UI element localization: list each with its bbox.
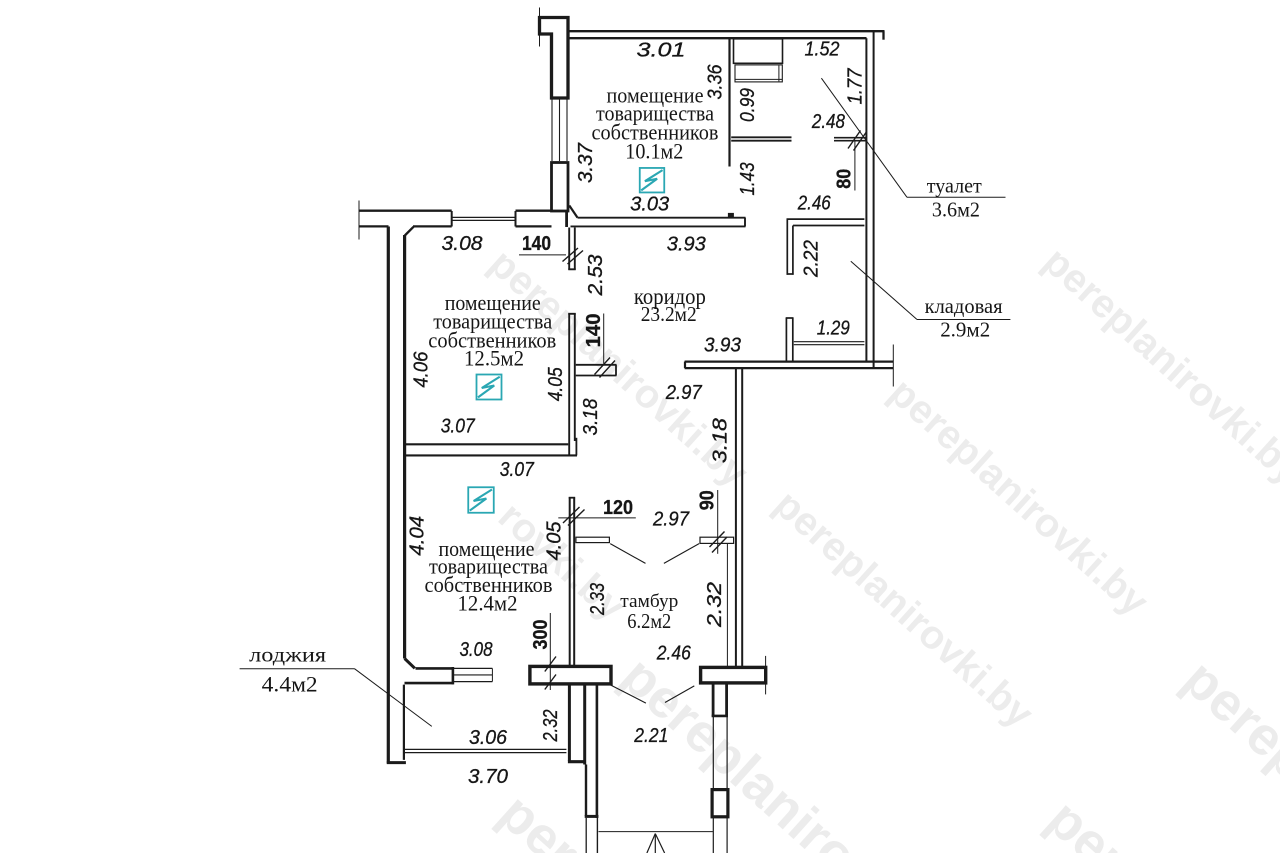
svg-text:0.99: 0.99	[737, 88, 759, 122]
svg-text:лоджия: лоджия	[249, 643, 326, 667]
svg-text:3.18: 3.18	[709, 418, 731, 463]
svg-text:2.46: 2.46	[797, 193, 832, 215]
svg-text:80: 80	[834, 169, 856, 189]
svg-text:1.77: 1.77	[845, 68, 867, 105]
svg-text:3.08: 3.08	[442, 233, 483, 255]
svg-text:3.06: 3.06	[469, 727, 508, 749]
svg-text:2.21: 2.21	[633, 725, 668, 747]
svg-text:2.22: 2.22	[801, 240, 823, 278]
svg-text:4.05: 4.05	[545, 367, 567, 402]
svg-text:3.18: 3.18	[580, 399, 602, 436]
svg-text:12.4м2: 12.4м2	[458, 591, 518, 616]
svg-text:1.52: 1.52	[805, 39, 840, 61]
svg-text:3.03: 3.03	[630, 194, 669, 216]
svg-text:3.70: 3.70	[468, 766, 508, 788]
svg-text:3.37: 3.37	[575, 142, 597, 183]
svg-text:90: 90	[697, 490, 719, 510]
svg-text:2.33: 2.33	[587, 583, 609, 616]
svg-text:3.07: 3.07	[441, 416, 476, 438]
svg-text:140: 140	[583, 313, 605, 347]
svg-text:3.93: 3.93	[704, 335, 741, 357]
svg-text:2.53: 2.53	[585, 255, 607, 297]
svg-text:3.36: 3.36	[705, 64, 727, 100]
svg-text:23.2м2: 23.2м2	[641, 302, 697, 326]
svg-text:12.5м2: 12.5м2	[464, 345, 524, 370]
svg-text:2.97: 2.97	[665, 382, 703, 404]
svg-text:10.1м2: 10.1м2	[625, 139, 683, 164]
svg-text:2.48: 2.48	[811, 111, 845, 133]
svg-text:2.9м2: 2.9м2	[940, 318, 990, 342]
svg-text:3.07: 3.07	[500, 459, 535, 481]
svg-text:120: 120	[603, 497, 633, 519]
svg-text:1.43: 1.43	[737, 163, 759, 196]
svg-text:4.4м2: 4.4м2	[262, 672, 318, 697]
svg-text:6.2м2: 6.2м2	[627, 609, 671, 633]
svg-text:3.6м2: 3.6м2	[932, 198, 980, 222]
svg-text:300: 300	[530, 620, 552, 650]
svg-text:2.32: 2.32	[540, 710, 562, 743]
svg-text:3.93: 3.93	[667, 234, 706, 256]
svg-text:4.06: 4.06	[410, 351, 432, 388]
svg-text:3.08: 3.08	[460, 639, 493, 661]
svg-text:туалет: туалет	[927, 174, 982, 198]
svg-text:кладовая: кладовая	[925, 294, 1003, 318]
svg-text:140: 140	[522, 233, 551, 255]
svg-text:1.29: 1.29	[817, 318, 850, 340]
svg-text:4.04: 4.04	[406, 516, 428, 556]
svg-text:4.05: 4.05	[544, 521, 566, 561]
svg-text:3.01: 3.01	[637, 40, 686, 62]
svg-text:2.32: 2.32	[704, 582, 726, 628]
svg-text:2.46: 2.46	[656, 643, 692, 665]
svg-text:2.97: 2.97	[652, 509, 690, 531]
